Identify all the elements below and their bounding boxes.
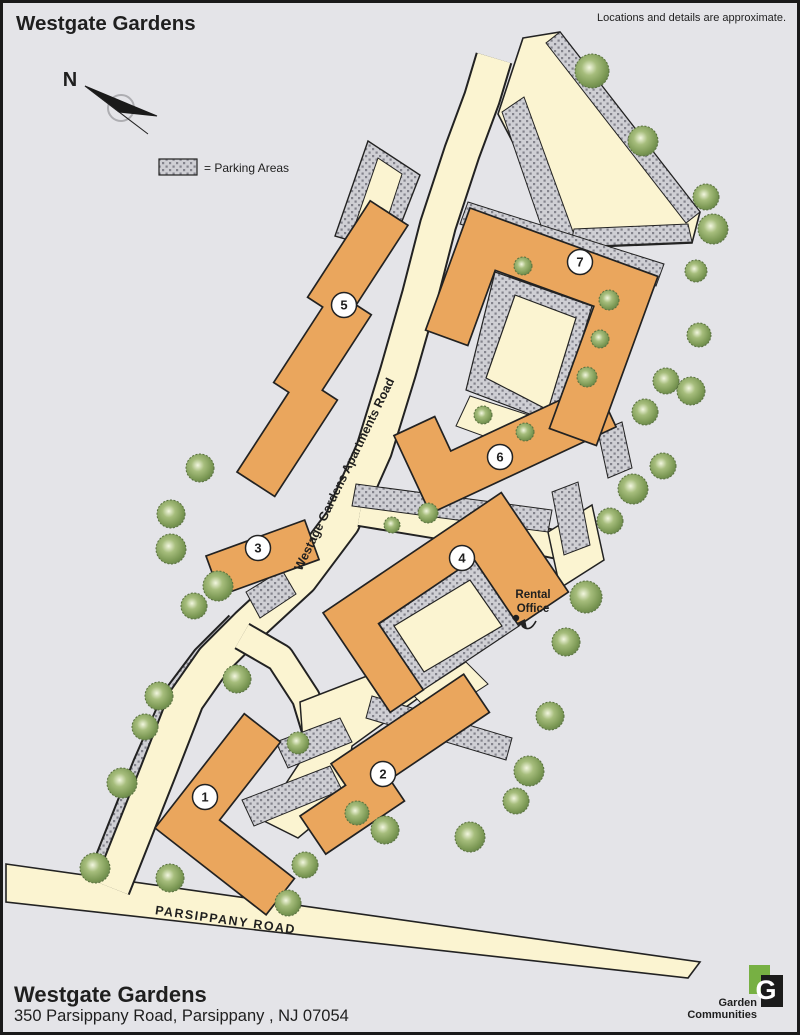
site-map-page: 1 2 3 4 5 6 7 Rental Office (0, 0, 800, 1035)
rental-office-label-line1: Rental (515, 589, 550, 601)
badge-5-number: 5 (340, 298, 347, 313)
badge-building-2: 2 (371, 762, 396, 787)
footer-address: 350 Parsippany Road, Parsippany , NJ 070… (14, 1007, 349, 1025)
badge-building-3: 3 (246, 536, 271, 561)
logo-text-garden: Garden (718, 997, 757, 1009)
badge-building-5: 5 (332, 293, 357, 318)
badge-building-7: 7 (568, 250, 593, 275)
rental-office-label-line2: Office (517, 603, 550, 615)
badge-building-1: 1 (193, 785, 218, 810)
site-map-canvas: 1 2 3 4 5 6 7 Rental Office (0, 0, 800, 1035)
badge-3-number: 3 (254, 541, 261, 556)
badge-1-number: 1 (201, 790, 208, 805)
legend: = Parking Areas (159, 159, 289, 175)
logo-letter-g: G (755, 975, 776, 1005)
badge-building-6: 6 (488, 445, 513, 470)
badge-building-4: 4 (450, 546, 475, 571)
badge-6-number: 6 (496, 450, 503, 465)
compass-north-label: N (63, 69, 77, 91)
logo-text-communities: Communities (687, 1009, 757, 1021)
legend-parking-swatch (159, 159, 197, 175)
disclaimer-text: Locations and details are approximate. (597, 12, 786, 24)
badge-2-number: 2 (379, 767, 386, 782)
footer-property-name: Westgate Gardens (14, 982, 207, 1007)
legend-parking-label: = Parking Areas (204, 161, 289, 175)
page-title: Westgate Gardens (16, 12, 196, 35)
badge-7-number: 7 (576, 255, 583, 270)
rental-office-dot (513, 615, 519, 621)
badge-4-number: 4 (458, 551, 466, 566)
